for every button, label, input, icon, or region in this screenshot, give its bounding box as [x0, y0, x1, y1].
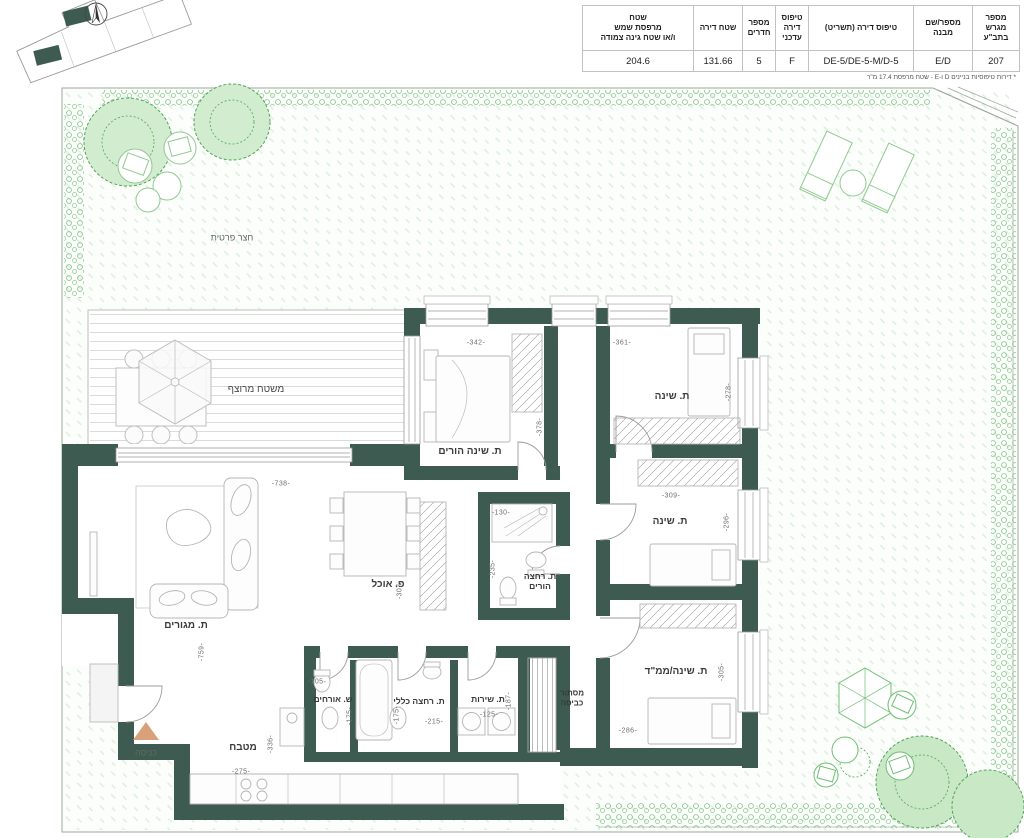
dim-safe-h: -305-	[719, 663, 726, 681]
table-col-type-current: טיפוס דירה עדכני F	[775, 6, 808, 71]
apartment-data-table: מספר מגרש בתב"ע 207 מספר/שם מבנה E/D טיפ…	[582, 5, 1020, 72]
col-value: 207	[973, 51, 1019, 71]
col-value: 204.6	[583, 51, 693, 71]
table-col-building: מספר/שם מבנה E/D	[913, 6, 972, 71]
dim-living-w: -738-	[272, 481, 290, 488]
table-col-type-drawing: טיפוס דירה (תשריט) DE-5/DE-5-M/D-5	[808, 6, 913, 71]
dim-hall-h: -378-	[537, 418, 544, 436]
dim-bed-top-w: -361-	[613, 340, 631, 347]
dim-wc-w: -105-	[308, 679, 326, 686]
floor-plan-drawing	[0, 0, 1024, 838]
col-value: DE-5/DE-5-M/D-5	[809, 51, 913, 71]
room-label-safe-room: ת. שינה/ממ"ד	[645, 666, 708, 678]
room-label-guest-wc: ש. אורחים	[313, 694, 352, 704]
yard-label: חצר פרטית	[211, 233, 254, 244]
room-label-parents-bedroom: ת. שינה הורים	[438, 446, 501, 458]
key-plan	[9, 0, 195, 84]
room-label-bedroom-top: ת. שינה	[655, 391, 690, 403]
entrance-label: כניסה	[135, 748, 157, 759]
dim-kitchen-h: -336-	[268, 735, 275, 753]
room-label-parents-bath: ת. רחצה הורים	[524, 571, 556, 591]
dim-pbath-w: -130-	[492, 510, 510, 517]
dim-dining-h: -307-	[397, 581, 404, 599]
room-label-bedroom-mid: ת. שינה	[653, 516, 688, 528]
col-header: שטח מרפסת שמש ו/או שטח גינה צמודה	[583, 6, 693, 51]
room-label-service: ת. שירות	[471, 694, 505, 704]
dim-parents-w: -342-	[467, 340, 485, 347]
room-label-living: ת. מגורים	[164, 620, 208, 632]
col-header: מספר/שם מבנה	[914, 6, 972, 51]
col-header: טיפוס דירה עדכני	[776, 6, 808, 51]
floor-plan-page: חצר פרטית משטח מרוצף ת. שינה הורים ת. שי…	[0, 0, 1024, 838]
dim-bed-mid-w: -309-	[662, 493, 680, 500]
col-value: F	[776, 51, 808, 71]
dim-service-w: -125-	[480, 712, 498, 719]
table-col-balcony-garden-area: שטח מרפסת שמש ו/או שטח גינה צמודה 204.6	[583, 6, 693, 71]
col-header: מספר חדרים	[743, 6, 775, 51]
table-col-apartment-area: שטח דירה 131.66	[693, 6, 742, 71]
deck	[88, 310, 408, 456]
dim-kitchen-w: -275-	[232, 769, 250, 776]
dim-bath-w: -215-	[425, 719, 443, 726]
dim-pbath-h: -235-	[490, 560, 497, 578]
col-value: E/D	[914, 51, 972, 71]
table-col-lot-number: מספר מגרש בתב"ע 207	[972, 6, 1019, 71]
room-label-laundry: מסתור כביסה	[555, 688, 589, 707]
dim-safe-w: -286-	[619, 728, 637, 735]
deck-label: משטח מרוצף	[228, 384, 284, 396]
room-label-kitchen: מטבח	[229, 742, 257, 754]
col-header: טיפוס דירה (תשריט)	[809, 6, 913, 51]
dim-service-h: -187-	[506, 692, 513, 710]
dim-bed-mid-h: -296-	[724, 513, 731, 531]
shrub-border-left	[64, 104, 84, 298]
col-header: מספר מגרש בתב"ע	[973, 6, 1019, 51]
dim-living-h: -759-	[199, 643, 206, 661]
col-value: 5	[743, 51, 775, 71]
col-header: שטח דירה	[694, 6, 742, 51]
table-footnote: * דירות טיפוסיות בניינים D ו-E - שטח מרפ…	[867, 74, 1016, 81]
dim-bed-top-h: -278-	[726, 383, 733, 401]
shrub-border-right	[991, 128, 1016, 796]
room-label-bath: ת. רחצה כללי	[393, 696, 444, 706]
dim-bath-h: -175-	[394, 706, 401, 724]
dim-wc-h: -175-	[347, 707, 354, 725]
table-col-rooms: מספר חדרים 5	[742, 6, 775, 71]
col-value: 131.66	[694, 51, 742, 71]
